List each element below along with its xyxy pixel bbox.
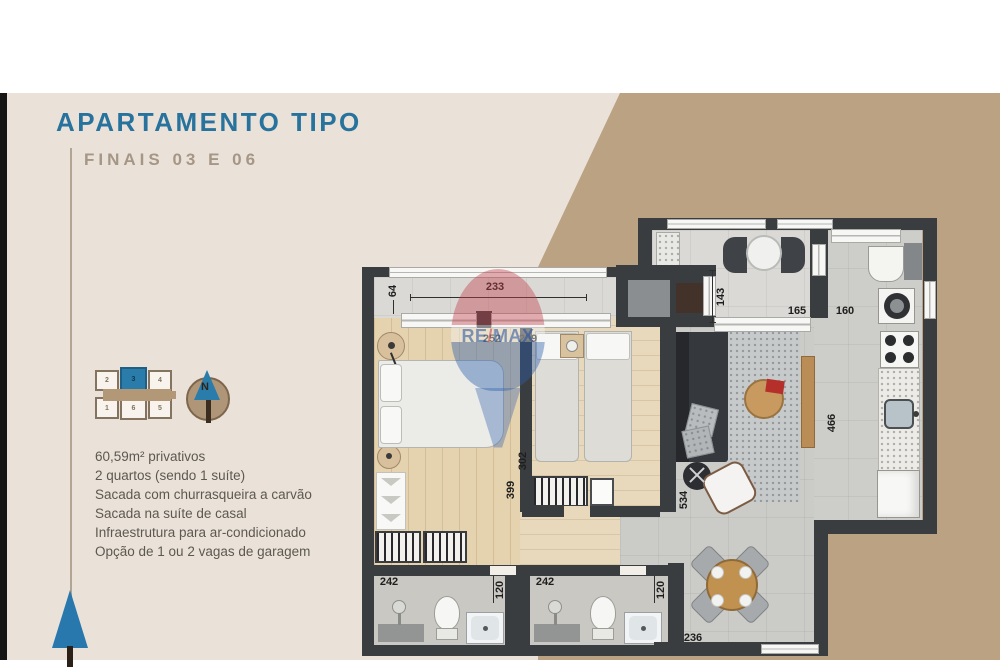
unit-box-4: 4 <box>148 370 172 391</box>
bath2-toilet <box>590 596 616 630</box>
wall-bedroom2-bottom <box>522 506 660 517</box>
charcoal-grill <box>676 283 703 313</box>
plate <box>711 566 724 579</box>
wall-lower-right <box>814 520 828 656</box>
dimension-tick <box>709 322 716 323</box>
corridor-bar <box>103 389 171 401</box>
feature-item: Sacada na suíte de casal <box>95 504 312 523</box>
shelf-chevron-icon <box>381 496 401 504</box>
dimension-label: 534 <box>678 491 690 509</box>
wall-bedroom2-living <box>660 318 676 512</box>
feature-item: Sacada com churrasqueira a carvão <box>95 485 312 504</box>
bath2-sink <box>548 600 562 614</box>
bath1-drain <box>483 626 488 631</box>
bath2-counter <box>534 624 580 642</box>
bath2-door-opening <box>620 566 646 575</box>
wall-bath-divider <box>505 565 530 656</box>
balcony-chair-left <box>723 237 747 273</box>
wall-outer-left <box>362 267 374 656</box>
remax-re: RE <box>461 326 487 346</box>
compass-needle-tail <box>206 398 211 423</box>
dimension-tick <box>410 294 411 301</box>
living-sliding-door <box>715 318 810 331</box>
dimension-label: 165 <box>788 305 806 317</box>
burner <box>903 352 914 363</box>
bath1-toilet-tank <box>436 628 458 640</box>
dimension-label: 242 <box>380 576 398 588</box>
page: APARTAMENTO TIPO FINAIS 03 E 06 2 3 4 1 … <box>0 0 1000 667</box>
plate <box>711 594 724 607</box>
feature-item: 2 quartos (sendo 1 suíte) <box>95 466 312 485</box>
bath1-sink <box>392 600 406 614</box>
page-subtitle: FINAIS 03 E 06 <box>84 150 259 170</box>
coffee-table-decor <box>765 379 785 394</box>
ac-condenser <box>628 280 670 317</box>
bath2-toilet-tank <box>592 628 614 640</box>
dining-window <box>762 645 818 653</box>
wall-step-right <box>826 520 937 534</box>
duct-shaft <box>904 243 922 280</box>
sofa-cushion-2 <box>681 425 714 458</box>
bath2-sink-pedestal <box>554 613 557 625</box>
bath1-counter <box>378 624 424 642</box>
dimension-label: 120 <box>655 581 667 599</box>
remax-max: MAX <box>493 326 535 346</box>
suite-wardrobe-left <box>375 531 421 563</box>
unit-number: 1 <box>105 405 109 412</box>
dimension-line-143 <box>712 270 713 322</box>
dimension-label: 160 <box>836 305 854 317</box>
dimension-label: 242 <box>536 576 554 588</box>
dimension-label: 399 <box>505 481 517 499</box>
balcony-access-door <box>704 277 715 315</box>
bath1-toilet <box>434 596 460 630</box>
shelf-chevron-icon <box>381 514 401 522</box>
dimension-label: 143 <box>715 288 727 306</box>
dimension-label: 64 <box>387 285 399 297</box>
remax-brand-text: RE/MAX <box>451 326 545 347</box>
page-title: APARTAMENTO TIPO <box>56 107 362 138</box>
left-edge-bar <box>0 93 7 660</box>
tv-sideboard <box>801 356 815 448</box>
corridor-stub <box>169 391 176 399</box>
up-arrow-icon <box>52 590 88 648</box>
dimension-label: 120 <box>494 581 506 599</box>
dimension-label: 466 <box>826 414 838 432</box>
kitchen-faucet <box>913 411 919 417</box>
dimension-line-64 <box>393 300 394 314</box>
laundry-tank <box>868 246 904 282</box>
kitchen-door-window <box>813 245 825 275</box>
burner <box>885 352 896 363</box>
suite-lamp-top <box>388 342 395 349</box>
bath1-sink-pedestal <box>398 613 401 625</box>
bedroom2-lamp <box>566 340 578 352</box>
unit-number: 6 <box>132 405 136 412</box>
compass-north-label: N <box>201 381 209 393</box>
living-balcony-window-2 <box>778 220 832 228</box>
unit-number: 5 <box>158 405 162 412</box>
unit-number: 2 <box>105 377 109 384</box>
bedroom2-wardrobe <box>532 476 588 507</box>
burner <box>903 335 914 346</box>
bath2-drain <box>641 626 646 631</box>
plate <box>739 594 752 607</box>
balcony-table <box>746 235 782 271</box>
shelf-chevron-icon <box>381 478 401 488</box>
unit-box-2: 2 <box>95 370 119 391</box>
suite-wardrobe-right <box>423 531 467 563</box>
feature-item: 60,59m² privativos <box>95 447 312 466</box>
kitchen-top-ledge <box>832 230 900 242</box>
suite-pillow-2 <box>380 406 402 444</box>
washing-machine-drum <box>890 299 904 313</box>
dimension-tick <box>586 294 587 301</box>
bedroom2-door-opening <box>564 506 590 517</box>
burner <box>885 335 896 346</box>
vertical-divider-line <box>70 148 72 600</box>
feature-list: 60,59m² privativos 2 quartos (sendo 1 su… <box>95 447 312 561</box>
unit-number: 3 <box>132 376 136 383</box>
hall-tile-floor <box>620 517 668 565</box>
up-arrow-stem <box>67 646 73 667</box>
kitchen-wall-window <box>925 282 935 318</box>
dimension-label: 302 <box>517 452 529 470</box>
bedroom2-bench <box>590 478 614 506</box>
bath1-door-opening <box>490 566 516 575</box>
suite-pillow-1 <box>380 364 402 402</box>
living-balcony-window <box>668 220 765 228</box>
dimension-tick <box>709 270 716 271</box>
wall-outer-right <box>923 218 937 534</box>
bedroom2-pillow-right <box>586 333 630 360</box>
kitchen-sink <box>884 399 914 429</box>
feature-item: Infraestrutura para ar-condicionado <box>95 523 312 542</box>
refrigerator <box>877 470 920 518</box>
feature-item: Opção de 1 ou 2 vagas de garagem <box>95 542 312 561</box>
balcony-chair-right <box>781 237 805 273</box>
unit-number: 4 <box>158 377 162 384</box>
dimension-label: 236 <box>684 632 702 644</box>
wall-bath2-right <box>668 563 684 656</box>
plate <box>739 566 752 579</box>
suite-lamp-bottom <box>386 453 392 459</box>
